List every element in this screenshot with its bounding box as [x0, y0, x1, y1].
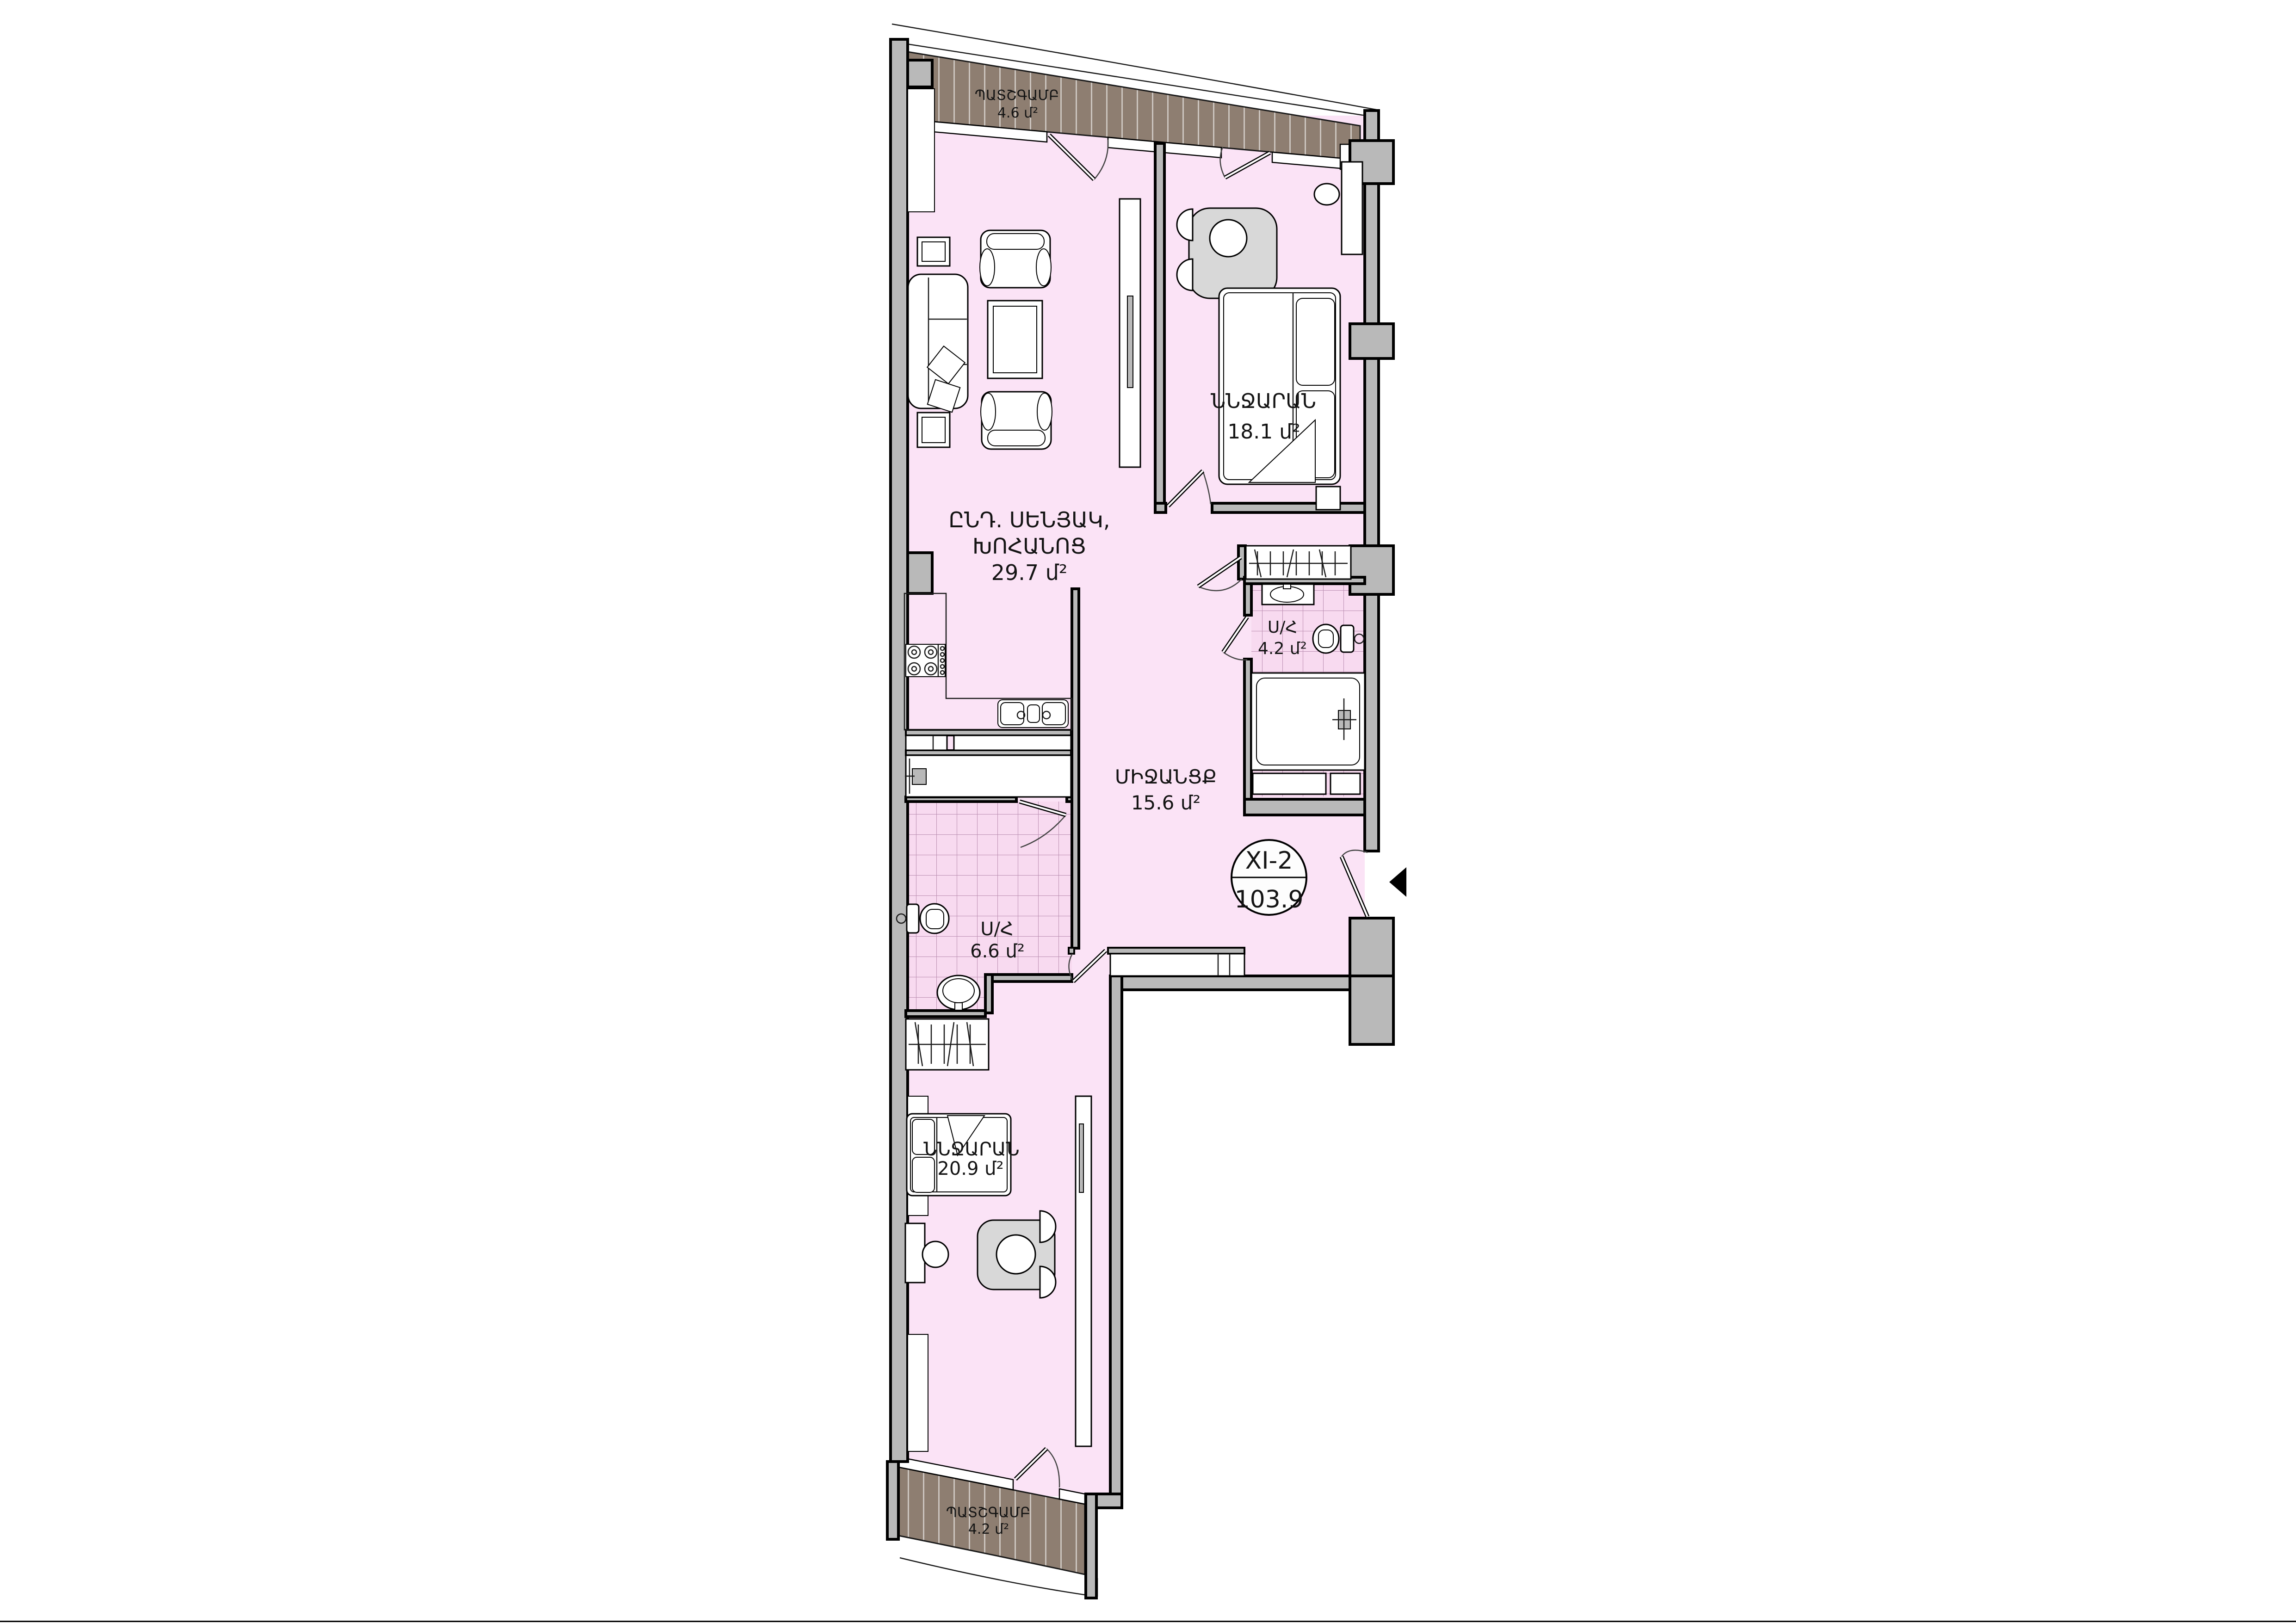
unit-number: XI-2	[1245, 847, 1293, 875]
label-living-area: 29.7 մ²	[991, 560, 1068, 585]
floorplan-canvas: XI-2 103.9 ՊԱՏՇԳԱՄԲ 4.6 մ² ԸՆԴ. ՍԵՆՅԱԿ, …	[0, 0, 2296, 1623]
pillar-top-left	[908, 60, 932, 87]
pillow-symbol	[1296, 298, 1335, 385]
wall-under-cabinets	[906, 750, 1071, 755]
label-balcony-top-area: 4.6 մ²	[997, 105, 1038, 121]
washbasin-symbol	[1262, 584, 1314, 605]
label-hallway-area: 15.6 մ²	[1131, 791, 1201, 814]
side-table-inner	[922, 417, 945, 443]
label-balcony-bottom-area: 4.2 մ²	[968, 1521, 1009, 1537]
label-bathroom-small-area: 4.2 մ²	[1258, 639, 1307, 658]
pillar-right-3	[1350, 546, 1393, 594]
hall-storage	[905, 735, 1071, 797]
unit-area: 103.9	[1235, 886, 1304, 913]
wall-bath-large-bottom-right	[992, 975, 1072, 981]
wardrobe-symbol	[906, 755, 1071, 797]
tv-stand-symbol	[1120, 199, 1140, 467]
side-table-inner	[922, 242, 945, 261]
table-symbol	[978, 1211, 1056, 1298]
wall-bath-small-bottom	[1244, 799, 1365, 815]
wall-hall-bottom-thin	[1108, 948, 1244, 954]
wall-right-upper	[1365, 111, 1379, 851]
dining-table-symbol	[1177, 208, 1277, 298]
armchair-symbol	[980, 230, 1051, 288]
wall-living-bedroom	[1155, 143, 1164, 503]
label-bathroom-large-area: 6.6 մ²	[970, 941, 1025, 962]
wall-south-thick	[1110, 976, 1350, 990]
hanger-rack-symbol	[906, 1019, 989, 1070]
label-bedroom-bottom-name: ՆՆՋԱՐԱՆ	[923, 1139, 1019, 1160]
label-living-name-2: ԽՈՀԱՆՈՑ	[972, 534, 1086, 559]
nightstand-symbol	[1316, 487, 1340, 510]
wall-bedroom-top-south-a	[1155, 503, 1166, 512]
sofa-symbol	[908, 274, 968, 412]
pillar-right-4	[1350, 918, 1393, 978]
pillar-right-5	[1350, 976, 1393, 1044]
cabinet-symbol	[954, 735, 1071, 750]
label-bedroom-bottom-area: 20.9 մ²	[937, 1158, 1003, 1179]
window-bedroom-bottom-2	[908, 1334, 928, 1451]
label-bedroom-top-name: ՆՆՋԱՐԱՆ	[1211, 389, 1316, 413]
pillar-kitchen	[908, 553, 932, 593]
wardrobe-symbol	[1076, 1096, 1091, 1446]
hanger-rack-symbol	[1246, 546, 1351, 579]
pillar-right-2	[1350, 324, 1393, 358]
cabinet-symbol	[906, 735, 947, 750]
bed-symbol	[1219, 288, 1340, 484]
wall-bedroom-bottom-right	[1110, 976, 1122, 1501]
pillow-symbol	[912, 1157, 934, 1192]
wall-bedroom-top-south-b	[1212, 503, 1365, 512]
label-living-name-1: ԸՆԴ. ՍԵՆՅԱԿ,	[949, 507, 1110, 532]
armchair-symbol	[981, 392, 1052, 449]
label-hallway-name: ՄԻՋԱՆՑՔ	[1115, 765, 1217, 788]
shelf-symbol	[1253, 773, 1326, 794]
stove-symbol	[906, 644, 945, 677]
page-border-bottom	[0, 1621, 2296, 1622]
wall-sink-nook-right	[985, 975, 992, 1013]
coffee-table-symbol	[988, 301, 1042, 378]
label-bathroom-large-name: Ս/Հ	[980, 919, 1013, 940]
wall-bath-small-left-a	[1244, 584, 1251, 615]
entry-arrow-icon	[1389, 867, 1406, 897]
chair-symbol	[1314, 184, 1339, 205]
kitchen-sink-symbol	[998, 700, 1068, 728]
wall-hall-bottom-jamb	[1069, 948, 1074, 954]
washbasin-symbol	[937, 975, 980, 1010]
wall-kitchen-block-right	[1072, 589, 1079, 948]
wall-sink-nook-bottom	[906, 1011, 985, 1017]
label-balcony-top-name: ՊԱՏՇԳԱՄԲ	[975, 87, 1059, 104]
unit-badge: XI-2 103.9	[1232, 840, 1306, 915]
duct-shaft	[1110, 954, 1244, 976]
bathtub-symbol	[1251, 673, 1365, 770]
wall-balcony-bottom-right	[1086, 1494, 1096, 1598]
wall-balcony-bottom-left	[887, 1462, 898, 1539]
label-bedroom-top-area: 18.1 մ²	[1227, 420, 1300, 444]
chair-symbol	[922, 1241, 948, 1267]
wall-closet-nook-stub	[1238, 546, 1245, 579]
wall-under-counter	[906, 730, 1071, 735]
tv-symbol	[1127, 296, 1133, 388]
shelf-symbol	[1331, 773, 1360, 794]
floorplan-page: XI-2 103.9 ՊԱՏՇԳԱՄԲ 4.6 մ² ԸՆԴ. ՍԵՆՅԱԿ, …	[0, 0, 2296, 1623]
label-bathroom-small-name: Ս/Հ	[1268, 618, 1297, 637]
window-living	[908, 89, 934, 212]
label-balcony-bottom-name: ՊԱՏՇԳԱՄԲ	[946, 1505, 1030, 1521]
wall-bath-small-left-b	[1244, 659, 1251, 799]
